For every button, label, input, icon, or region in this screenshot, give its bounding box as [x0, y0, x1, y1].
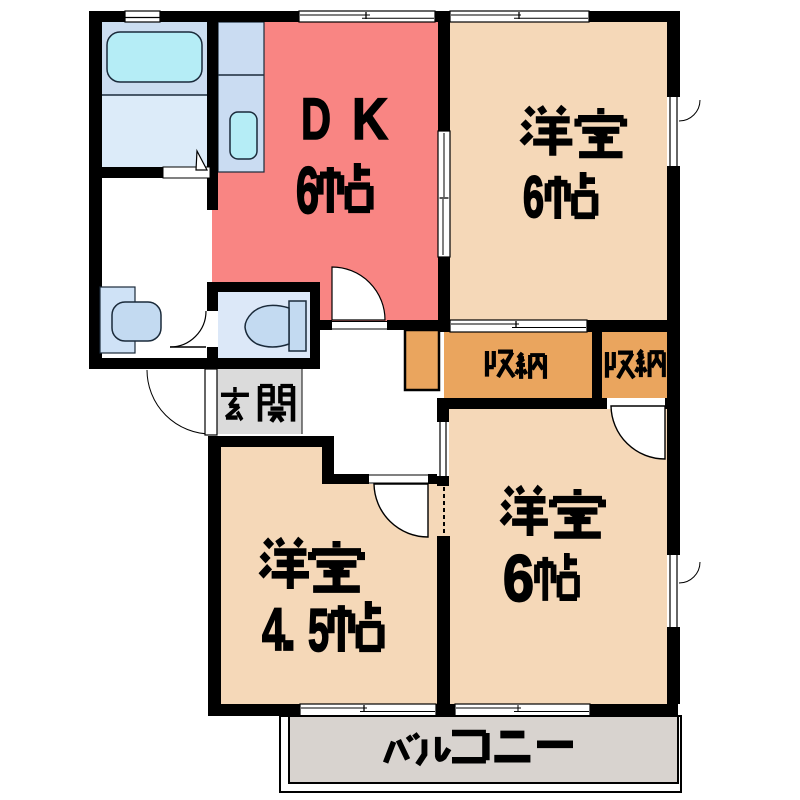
svg-text:6: 6 — [503, 541, 534, 615]
svg-text:.: . — [280, 596, 297, 663]
svg-text:D: D — [301, 87, 331, 152]
svg-text:5: 5 — [308, 597, 329, 664]
svg-text:6: 6 — [523, 165, 544, 230]
svg-text:6: 6 — [296, 153, 319, 227]
svg-text:K: K — [352, 87, 388, 152]
